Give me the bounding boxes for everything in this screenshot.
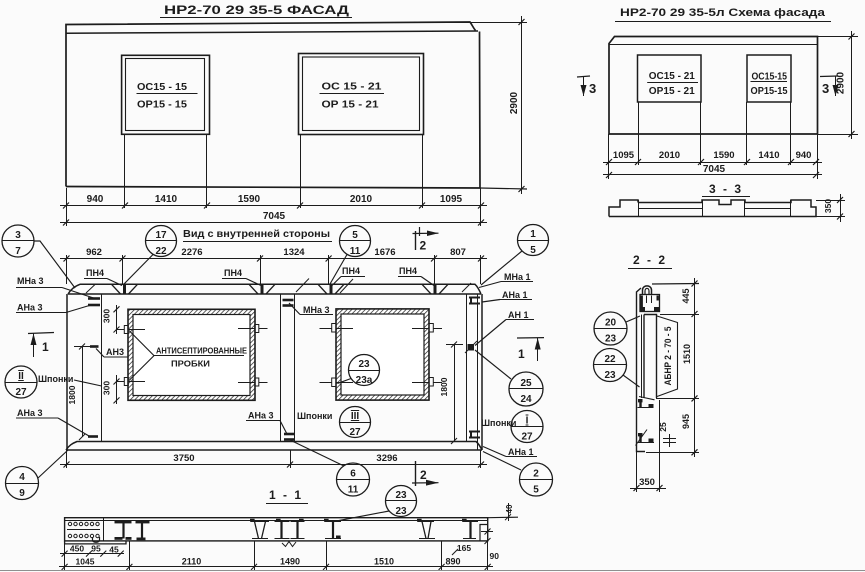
- svg-text:2: 2: [420, 239, 427, 253]
- svg-text:807: 807: [450, 247, 466, 258]
- svg-text:940: 940: [796, 150, 812, 161]
- svg-text:МНа 3: МНа 3: [17, 276, 44, 286]
- svg-text:350: 350: [823, 199, 833, 213]
- svg-text:2110: 2110: [182, 557, 202, 567]
- svg-text:1410: 1410: [155, 194, 178, 205]
- svg-text:1510: 1510: [682, 344, 692, 364]
- svg-text:ПН4: ПН4: [86, 268, 104, 278]
- svg-text:445: 445: [681, 288, 691, 303]
- svg-text:23: 23: [395, 490, 407, 501]
- svg-text:11: 11: [350, 246, 361, 257]
- svg-text:20: 20: [605, 318, 617, 329]
- svg-text:1 - 1: 1 - 1: [269, 488, 303, 502]
- svg-text:1410: 1410: [758, 150, 779, 161]
- svg-text:940: 940: [87, 194, 104, 205]
- svg-text:300: 300: [102, 381, 112, 395]
- svg-text:45: 45: [109, 545, 119, 555]
- svg-text:3750: 3750: [173, 453, 194, 464]
- svg-text:1: 1: [42, 340, 49, 354]
- svg-text:АБНР 2 - 70 - 5: АБНР 2 - 70 - 5: [663, 327, 673, 386]
- svg-text:ОР15 - 15: ОР15 - 15: [137, 100, 187, 111]
- svg-text:5: 5: [352, 230, 358, 241]
- svg-text:945: 945: [681, 414, 691, 429]
- svg-text:2900: 2900: [509, 91, 520, 114]
- svg-text:450: 450: [70, 544, 84, 554]
- svg-text:Шпонки: Шпонки: [38, 374, 73, 384]
- svg-text:МНа 3: МНа 3: [303, 305, 330, 315]
- svg-text:1095: 1095: [440, 194, 463, 205]
- svg-text:1676: 1676: [374, 247, 395, 258]
- svg-text:ПРОБКИ: ПРОБКИ: [171, 359, 210, 369]
- svg-text:1: 1: [530, 229, 536, 240]
- svg-text:1095: 1095: [613, 150, 635, 161]
- svg-text:ПН4: ПН4: [224, 268, 242, 278]
- svg-text:1800: 1800: [439, 377, 449, 396]
- svg-text:ОС15-15: ОС15-15: [752, 72, 788, 83]
- svg-text:6: 6: [350, 469, 356, 480]
- svg-text:165: 165: [457, 543, 471, 553]
- svg-text:90: 90: [490, 551, 500, 561]
- svg-text:АН3: АН3: [106, 347, 124, 357]
- svg-text:I: I: [526, 416, 529, 427]
- svg-text:ОР 15 - 21: ОР 15 - 21: [322, 100, 380, 111]
- svg-text:3 - 3: 3 - 3: [709, 182, 743, 196]
- svg-text:ПН4: ПН4: [342, 266, 360, 276]
- svg-text:890: 890: [445, 557, 460, 567]
- svg-text:ОС15 - 15: ОС15 - 15: [137, 82, 187, 93]
- svg-text:3: 3: [15, 230, 21, 241]
- svg-text:2010: 2010: [659, 150, 680, 161]
- svg-text:АНа 3: АНа 3: [248, 411, 274, 421]
- svg-text:2276: 2276: [181, 247, 202, 258]
- svg-text:2 - 2: 2 - 2: [633, 253, 667, 267]
- svg-text:23: 23: [358, 359, 370, 370]
- svg-text:АНа 3: АНа 3: [17, 303, 43, 313]
- svg-text:НР2-70 29 35-5 ФАСАД: НР2-70 29 35-5 ФАСАД: [164, 5, 349, 17]
- svg-text:23: 23: [604, 370, 616, 381]
- svg-text:17: 17: [155, 230, 167, 241]
- svg-text:2: 2: [533, 469, 539, 480]
- svg-text:3: 3: [822, 81, 829, 96]
- svg-text:1590: 1590: [713, 150, 734, 161]
- svg-text:5: 5: [530, 245, 536, 256]
- svg-text:300: 300: [102, 309, 112, 323]
- svg-text:АНа 1: АНа 1: [508, 447, 534, 457]
- svg-text:25: 25: [520, 378, 532, 389]
- svg-text:7: 7: [15, 246, 21, 257]
- svg-text:1800: 1800: [67, 385, 77, 404]
- svg-text:7045: 7045: [703, 164, 726, 175]
- svg-text:23а: 23а: [356, 375, 373, 386]
- svg-text:7045: 7045: [263, 211, 286, 222]
- svg-text:ОС15 - 21: ОС15 - 21: [649, 71, 695, 82]
- svg-text:1: 1: [518, 347, 525, 361]
- svg-text:II: II: [18, 371, 24, 382]
- svg-text:АНТИСЕПТИРОВАННЫЕ: АНТИСЕПТИРОВАННЫЕ: [156, 347, 247, 356]
- svg-text:ПН4: ПН4: [399, 266, 417, 276]
- svg-text:4: 4: [19, 472, 25, 483]
- svg-text:АНа 1: АНа 1: [502, 290, 528, 300]
- svg-text:27: 27: [349, 427, 361, 438]
- svg-text:2: 2: [420, 468, 427, 482]
- svg-text:22: 22: [155, 246, 167, 257]
- svg-text:3: 3: [589, 81, 596, 96]
- svg-text:27: 27: [15, 387, 27, 398]
- svg-text:11: 11: [348, 485, 359, 496]
- svg-text:МНа 1: МНа 1: [504, 272, 531, 282]
- svg-text:1510: 1510: [374, 557, 394, 567]
- svg-text:ОР15 - 21: ОР15 - 21: [649, 86, 695, 97]
- svg-text:III: III: [351, 411, 360, 422]
- svg-text:95: 95: [91, 544, 101, 554]
- svg-text:1490: 1490: [280, 557, 300, 567]
- svg-text:5: 5: [533, 485, 539, 496]
- svg-text:2010: 2010: [350, 194, 373, 205]
- svg-text:1590: 1590: [238, 194, 261, 205]
- svg-text:АНа 3: АНа 3: [17, 408, 43, 418]
- svg-text:9: 9: [19, 488, 25, 499]
- svg-text:23: 23: [395, 506, 407, 517]
- svg-text:НР2-70 29 35-5л Схема фасада: НР2-70 29 35-5л Схема фасада: [620, 7, 826, 19]
- svg-text:1045: 1045: [76, 557, 95, 567]
- svg-text:3296: 3296: [376, 453, 397, 464]
- svg-text:40: 40: [505, 504, 514, 513]
- svg-text:962: 962: [86, 247, 102, 258]
- svg-text:27: 27: [521, 432, 533, 443]
- svg-text:350: 350: [639, 477, 655, 488]
- svg-text:ОР15-15: ОР15-15: [751, 86, 788, 97]
- svg-text:1324: 1324: [283, 247, 305, 258]
- svg-text:24: 24: [520, 394, 532, 405]
- svg-text:23: 23: [605, 334, 617, 345]
- svg-text:Шпонки: Шпонки: [297, 411, 332, 421]
- svg-text:АН 1: АН 1: [508, 310, 529, 320]
- svg-text:ОС 15 - 21: ОС 15 - 21: [322, 82, 383, 93]
- svg-text:22: 22: [604, 354, 616, 365]
- svg-text:Вид с внутренней стороны: Вид с внутренней стороны: [183, 229, 330, 240]
- svg-text:2900: 2900: [836, 71, 847, 94]
